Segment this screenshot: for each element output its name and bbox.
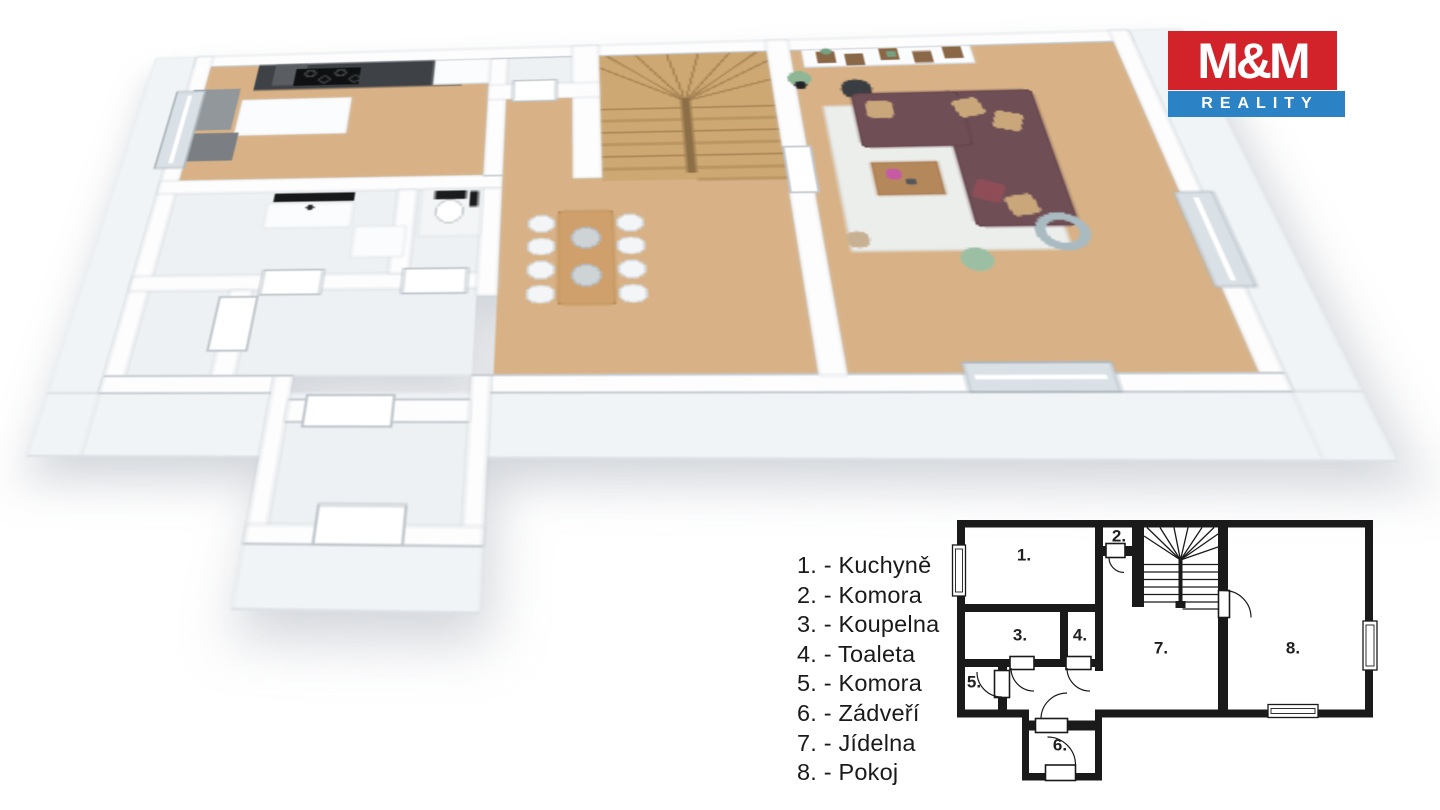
wall bbox=[1095, 528, 1103, 605]
legend-item: 5. - Komora bbox=[797, 669, 939, 699]
brand-logo-text: REALITY bbox=[1168, 91, 1345, 117]
shelf-niche bbox=[941, 46, 964, 58]
pendant-lamp bbox=[572, 227, 600, 247]
legend-item: 4. - Toaleta bbox=[797, 640, 939, 670]
legend-item: 6. - Zádveří bbox=[797, 699, 939, 729]
sofa-cushion bbox=[866, 100, 894, 119]
wall bbox=[99, 376, 274, 394]
dining-chair bbox=[617, 237, 645, 254]
dining-chair bbox=[528, 238, 555, 255]
door-leaf bbox=[259, 270, 324, 295]
door-leaf bbox=[1066, 657, 1091, 670]
wall bbox=[490, 373, 1293, 393]
room-number-bathroom: 3. bbox=[1013, 626, 1027, 645]
door-leaf bbox=[401, 268, 467, 294]
wall bbox=[1218, 520, 1228, 591]
building-face bbox=[232, 544, 483, 613]
legend-item: 7. - Jídelna bbox=[797, 729, 939, 759]
room-number-toilet: 4. bbox=[1073, 626, 1087, 645]
door-swing-arc bbox=[1011, 668, 1034, 691]
legend-item: 8. - Pokoj bbox=[797, 758, 939, 788]
door-leaf bbox=[1106, 544, 1125, 558]
brand-logo: M&M REALITY bbox=[1168, 31, 1345, 117]
wall bbox=[1102, 710, 1373, 718]
door-leaf bbox=[302, 395, 394, 427]
dining-chair bbox=[619, 284, 648, 302]
door-swing-arc bbox=[1109, 558, 1124, 573]
wall bbox=[957, 520, 1373, 528]
dining-table bbox=[558, 210, 617, 305]
door-leaf bbox=[1036, 719, 1068, 733]
wall bbox=[1095, 710, 1102, 781]
floor-tile bbox=[235, 288, 477, 376]
door-leaf bbox=[1046, 765, 1076, 781]
door-leaf bbox=[1219, 591, 1230, 618]
room-number-room: 8. bbox=[1286, 639, 1300, 658]
room-number-dining: 7. bbox=[1154, 639, 1168, 658]
legend-item: 3. - Koupelna bbox=[797, 610, 939, 640]
staircase-3d bbox=[599, 51, 787, 181]
room-number-entry: 6. bbox=[1053, 736, 1067, 755]
stair-spine bbox=[1179, 558, 1183, 605]
wall bbox=[1218, 617, 1228, 710]
window bbox=[1363, 621, 1377, 670]
pendant-lamp bbox=[572, 265, 601, 286]
shelf-niche bbox=[912, 51, 934, 63]
real-estate-floorplan-visual: 1. 2. 3. 4. 5. 6. 7. 8. 1. - Kuchyně 2. … bbox=[0, 0, 1440, 810]
wall bbox=[572, 45, 602, 178]
staircase-2d bbox=[1144, 528, 1218, 610]
room-legend: 1. - Kuchyně 2. - Komora 3. - Koupelna 4… bbox=[797, 551, 939, 788]
dining-chair bbox=[528, 216, 555, 232]
washing-machine bbox=[350, 226, 406, 257]
dining-chair bbox=[526, 285, 554, 303]
kitchen-cabinet bbox=[433, 59, 490, 85]
door-leaf bbox=[313, 505, 406, 546]
sofa-chaise bbox=[850, 91, 973, 148]
window bbox=[953, 545, 966, 596]
shelf-niche bbox=[844, 53, 865, 65]
legend-item: 1. - Kuchyně bbox=[797, 551, 939, 581]
wall bbox=[957, 604, 1103, 612]
dining-chair bbox=[618, 260, 647, 278]
kitchen-island bbox=[234, 97, 352, 135]
legend-item: 2. - Komora bbox=[797, 581, 939, 611]
door-leaf bbox=[995, 671, 1010, 698]
door-leaf bbox=[1010, 657, 1034, 670]
building-face bbox=[487, 392, 1324, 461]
window bbox=[1268, 705, 1318, 718]
wall bbox=[1365, 520, 1373, 717]
door-leaf bbox=[513, 80, 557, 102]
shower-fixture bbox=[469, 191, 479, 207]
stair-winder-tread bbox=[1144, 536, 1181, 560]
dining-chair bbox=[616, 214, 644, 231]
building-face bbox=[81, 393, 271, 457]
stair-newel bbox=[1176, 601, 1186, 608]
door-swing-arc bbox=[1041, 693, 1067, 719]
room-number-closet: 5. bbox=[967, 673, 981, 692]
wall bbox=[1022, 710, 1029, 781]
bathroom-mirror bbox=[273, 192, 355, 203]
toilet-cistern bbox=[435, 190, 467, 199]
room-number-kitchen: 1. bbox=[1017, 546, 1031, 565]
wall bbox=[1060, 612, 1068, 659]
brand-logo-mark: M&M bbox=[1168, 31, 1337, 90]
dining-chair bbox=[527, 261, 555, 278]
wall bbox=[1095, 612, 1103, 671]
wall bbox=[1132, 520, 1144, 607]
wall bbox=[957, 710, 1022, 718]
door-swing-arc bbox=[1067, 668, 1090, 691]
room-number-pantry: 2. bbox=[1112, 527, 1126, 546]
stair-winder-tread bbox=[1181, 547, 1219, 560]
stair-winder-tread bbox=[1181, 528, 1215, 561]
coffee-table bbox=[871, 161, 946, 195]
floor-plan-2d: 1. 2. 3. 4. 5. 6. 7. 8. bbox=[950, 514, 1380, 790]
